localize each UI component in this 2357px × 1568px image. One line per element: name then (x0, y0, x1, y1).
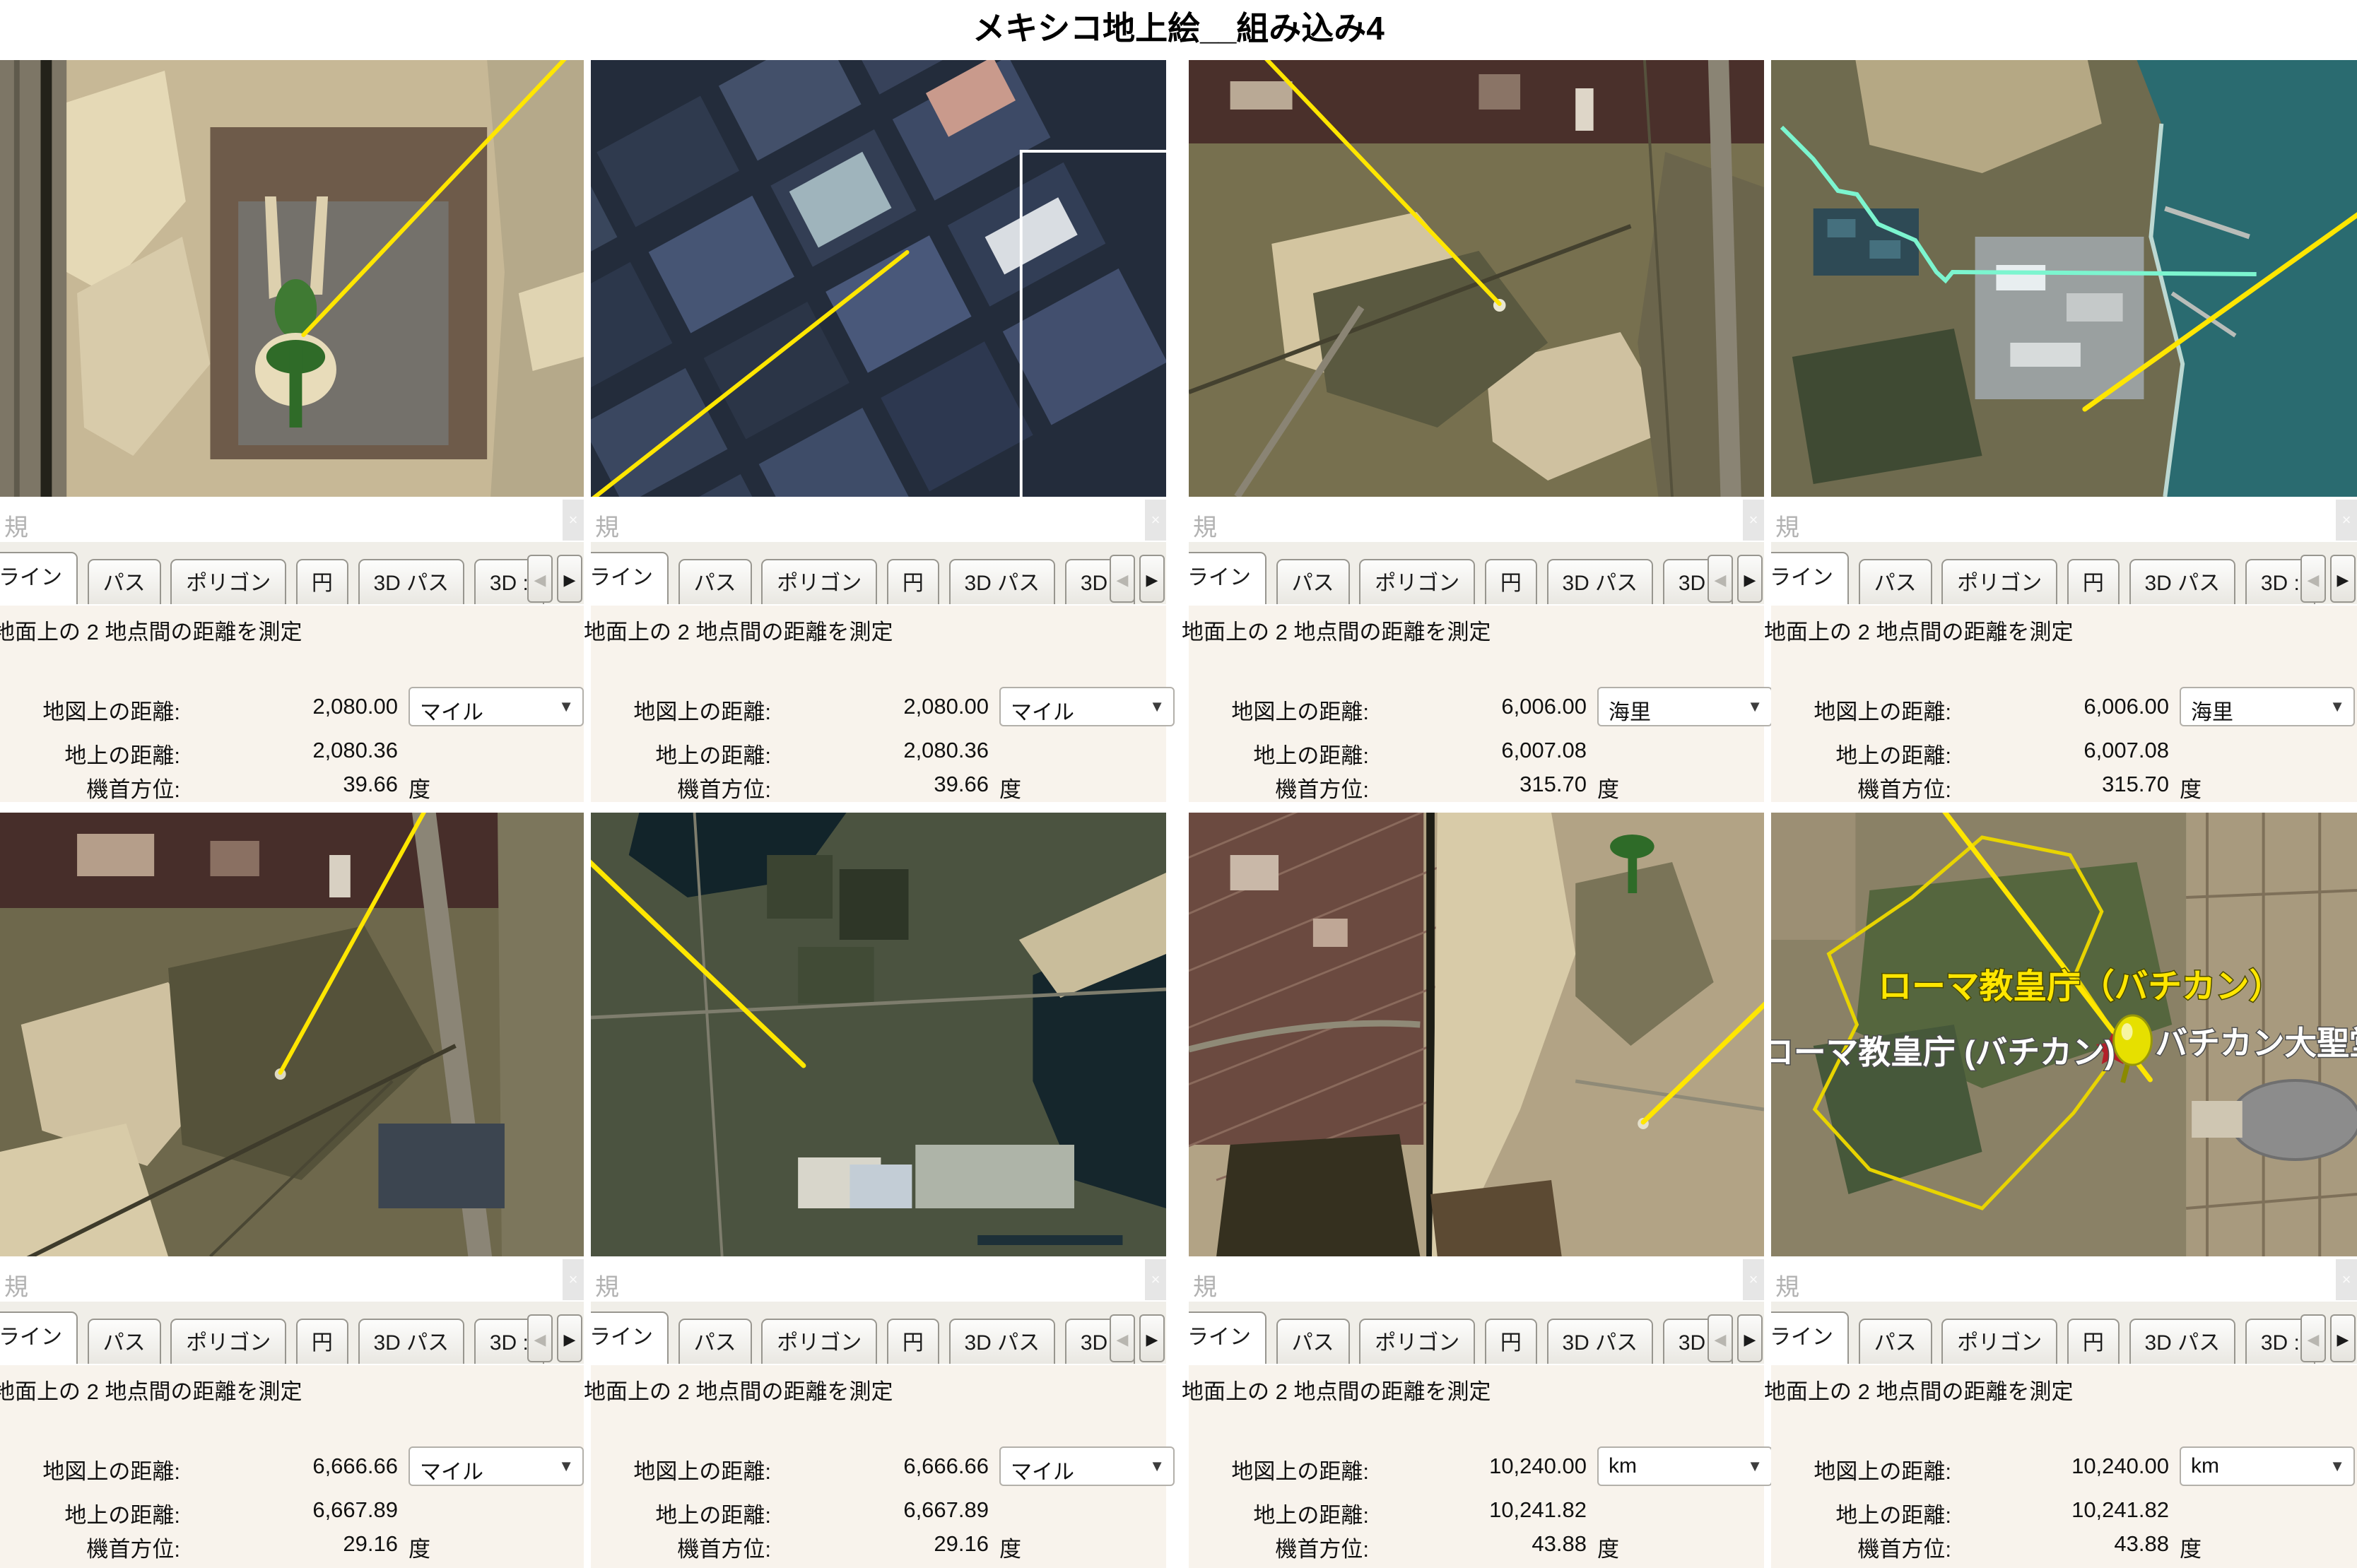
clipped-window-title: 規 (1193, 1268, 1217, 1302)
ground-distance-value: 2,080.36 (182, 738, 398, 763)
window-edge-strip: 規 × (0, 1256, 584, 1302)
ground-distance-value: 10,241.82 (1953, 1497, 2169, 1523)
measure-tabbar: ライン パス ポリゴン 円 3D パス 3D : ◀ ▶ (1771, 1302, 2357, 1365)
map-distance-label: 地図上の距離: (1771, 1454, 1951, 1485)
bottom-row: 規 × ライン パス ポリゴン 円 3D パス 3D : ◀ ▶ 地面上の 2 … (0, 802, 2357, 1568)
dropdown-arrow-icon: ▼ (558, 1457, 574, 1475)
measure-description: 地面上の 2 地点間の距離を測定 (1182, 614, 1764, 646)
degrees-suffix: 度 (2180, 1531, 2229, 1563)
heading-value: 43.88 (1371, 1531, 1587, 1557)
unit-select[interactable]: マイル ▼ (999, 1446, 1175, 1486)
tab-3d-path[interactable]: 3D パス (949, 559, 1056, 606)
tab-3d-path[interactable]: 3D パス (949, 1319, 1056, 1365)
clipped-window-button[interactable]: × (2336, 1259, 2357, 1300)
measure-tabbar: ライン パス ポリゴン 円 3D パス 3D : ◀ ▶ (1189, 1302, 1764, 1365)
tab-polygon[interactable]: ポリゴン (1359, 1319, 1475, 1365)
tab-polygon[interactable]: ポリゴン (1359, 559, 1475, 606)
tab-circle[interactable]: 円 (296, 559, 348, 606)
tab-path[interactable]: パス (88, 559, 161, 606)
heading-label: 機首方位: (1771, 1531, 1951, 1563)
unit-value: マイル (420, 1454, 483, 1485)
tab-line[interactable]: ライン (591, 1311, 669, 1365)
satellite-image-geoglyph[interactable] (0, 60, 584, 497)
map-distance-value: 2,080.00 (182, 694, 398, 719)
measure-description: 地面上の 2 地点間の距離を測定 (0, 1374, 584, 1405)
tab-scroll-right-icon[interactable]: ▶ (1139, 555, 1165, 603)
satellite-image-desert-river[interactable] (1189, 813, 1764, 1256)
ground-distance-label: 地上の距離: (1189, 1497, 1369, 1529)
tab-line[interactable]: ライン (1189, 1311, 1266, 1365)
satellite-image-industrial[interactable] (591, 813, 1166, 1256)
ground-distance-value: 6,007.08 (1371, 738, 1587, 763)
place-label-left[interactable]: ローマ教皇庁 (バチカン) (1771, 1034, 2115, 1071)
degrees-suffix: 度 (999, 772, 1049, 803)
unit-select[interactable]: km ▼ (2180, 1446, 2355, 1486)
tab-scroll-right-icon[interactable]: ▶ (1737, 555, 1763, 603)
heading-label: 機首方位: (0, 772, 180, 803)
heading-label: 機首方位: (1771, 772, 1951, 803)
measure-slot: 規 × ライン パス ポリゴン 円 3D パス 3D : ◀ ▶ 地面上の 2 … (1771, 1256, 2357, 1568)
ground-distance-value: 6,667.89 (773, 1497, 989, 1523)
measure-slot: 規 × ライン パス ポリゴン 円 3D パス 3D : ◀ ▶ 地面上の 2 … (0, 1256, 584, 1568)
heading-value: 43.88 (1953, 1531, 2169, 1557)
dropdown-arrow-icon: ▼ (558, 697, 574, 716)
satellite-image-desert-b[interactable] (0, 813, 584, 1256)
satellite-image-coast[interactable] (1771, 60, 2357, 497)
clipped-window-button[interactable]: × (1743, 500, 1764, 541)
tab-path[interactable]: パス (1276, 1319, 1350, 1365)
tab-polygon[interactable]: ポリゴン (1941, 1319, 2057, 1365)
unit-select[interactable]: マイル ▼ (999, 687, 1175, 726)
tab-scroll-right-icon[interactable]: ▶ (1139, 1314, 1165, 1362)
tab-circle[interactable]: 円 (1485, 1319, 1537, 1365)
measure-description: 地面上の 2 地点間の距離を測定 (1764, 1374, 2357, 1405)
map-distance-value: 6,666.66 (182, 1454, 398, 1479)
heading-label: 機首方位: (0, 1531, 180, 1563)
window-edge-strip: 規 × (0, 497, 584, 542)
map-distance-value: 2,080.00 (773, 694, 989, 719)
ground-distance-value: 6,007.08 (1953, 738, 2169, 763)
tab-path[interactable]: パス (678, 559, 752, 606)
dropdown-arrow-icon: ▼ (1747, 1457, 1763, 1475)
map-distance-label: 地図上の距離: (591, 1454, 771, 1485)
map-distance-value: 10,240.00 (1371, 1454, 1587, 1479)
tab-scroll-right-icon[interactable]: ▶ (557, 555, 582, 603)
tab-circle[interactable]: 円 (887, 559, 939, 606)
measure-tabbar: ライン パス ポリゴン 円 3D パス 3D : ◀ ▶ (591, 542, 1166, 606)
ground-distance-label: 地上の距離: (0, 1497, 180, 1529)
measure-description: 地面上の 2 地点間の距離を測定 (1764, 614, 2357, 646)
unit-value: マイル (1011, 1454, 1074, 1485)
tab-3d-path[interactable]: 3D パス (1547, 1319, 1654, 1365)
satellite-image-vatican[interactable]: ローマ教皇庁（バチカン） ローマ教皇庁 (バチカン) バチカン大聖堂 (1771, 813, 2357, 1256)
tab-scroll-right-icon[interactable]: ▶ (1737, 1314, 1763, 1362)
tab-scroll-left-icon[interactable]: ◀ (1110, 1314, 1135, 1362)
ground-distance-label: 地上の距離: (1189, 738, 1369, 770)
tab-scroll-left-icon[interactable]: ◀ (1110, 555, 1135, 603)
tab-circle[interactable]: 円 (296, 1319, 348, 1365)
tab-line[interactable]: ライン (591, 552, 669, 606)
tab-scroll-right-icon[interactable]: ▶ (2330, 1314, 2356, 1362)
st-peters-square (2230, 1080, 2357, 1160)
tab-line[interactable]: ライン (0, 1311, 78, 1365)
place-label-right[interactable]: バチカン大聖堂 (2155, 1025, 2357, 1061)
map-distance-value: 6,006.00 (1953, 694, 2169, 719)
clipped-window-title: 規 (1775, 508, 1799, 543)
tab-line[interactable]: ライン (1771, 1311, 1849, 1365)
measure-tabbar: ライン パス ポリゴン 円 3D パス 3D : ◀ ▶ (1771, 542, 2357, 606)
tab-scroll-left-icon[interactable]: ◀ (1707, 1314, 1733, 1362)
heading-label: 機首方位: (1189, 772, 1369, 803)
ground-distance-value: 2,080.36 (773, 738, 989, 763)
clipped-window-button[interactable]: × (2336, 500, 2357, 541)
clipped-window-button[interactable]: × (1145, 500, 1166, 541)
clipped-window-button[interactable]: × (563, 1259, 584, 1300)
unit-select[interactable]: マイル ▼ (408, 1446, 584, 1486)
degrees-suffix: 度 (1597, 772, 1647, 803)
degrees-suffix: 度 (408, 1531, 458, 1563)
measure-tabbar: ライン パス ポリゴン 円 3D パス 3D : ◀ ▶ (591, 1302, 1166, 1365)
map-distance-label: 地図上の距離: (1189, 1454, 1369, 1485)
measure-slot: 規 × ライン パス ポリゴン 円 3D パス 3D : ◀ ▶ 地面上の 2 … (1189, 497, 1764, 802)
heading-value: 29.16 (773, 1531, 989, 1557)
measure-slot: 規 × ライン パス ポリゴン 円 3D パス 3D : ◀ ▶ 地面上の 2 … (1189, 1256, 1764, 1568)
tab-scroll-left-icon[interactable]: ◀ (527, 555, 553, 603)
heading-value: 29.16 (182, 1531, 398, 1557)
unit-value: km (2191, 1454, 2219, 1478)
tab-scroll-left-icon[interactable]: ◀ (527, 1314, 553, 1362)
ruler-measure-panel: 規 × ライン パス ポリゴン 円 3D パス 3D : ◀ ▶ 地面上の 2 … (0, 497, 584, 802)
degrees-suffix: 度 (2180, 772, 2229, 803)
unit-select[interactable]: km ▼ (1597, 1446, 1773, 1486)
tab-3d-path[interactable]: 3D パス (358, 559, 465, 606)
tab-path[interactable]: パス (1859, 1319, 1932, 1365)
window-edge-strip: 規 × (1771, 497, 2357, 542)
heading-label: 機首方位: (1189, 1531, 1369, 1563)
window-edge-strip: 規 × (1189, 1256, 1764, 1302)
ground-distance-label: 地上の距離: (1771, 738, 1951, 770)
degrees-suffix: 度 (999, 1531, 1049, 1563)
tab-3d-path[interactable]: 3D パス (358, 1319, 465, 1365)
tab-path[interactable]: パス (88, 1319, 161, 1365)
ground-distance-label: 地上の距離: (591, 1497, 771, 1529)
tab-line[interactable]: ライン (1189, 552, 1266, 606)
unit-value: マイル (1011, 695, 1074, 726)
unit-value: 海里 (2191, 695, 2233, 726)
measure-description: 地面上の 2 地点間の距離を測定 (1182, 1374, 1764, 1405)
clipped-window-title: 規 (4, 1268, 28, 1302)
dropdown-arrow-icon: ▼ (2329, 1457, 2345, 1475)
heading-value: 315.70 (1371, 772, 1587, 797)
dropdown-arrow-icon: ▼ (1149, 697, 1165, 716)
ruler-measure-panel: 規 × ライン パス ポリゴン 円 3D パス 3D : ◀ ▶ 地面上の 2 … (1189, 497, 1764, 802)
satellite-image-city[interactable] (591, 60, 1166, 497)
window-edge-strip: 規 × (591, 497, 1166, 542)
measure-slot: 規 × ライン パス ポリゴン 円 3D パス 3D : ◀ ▶ 地面上の 2 … (591, 497, 1166, 802)
ruler-measure-panel: 規 × ライン パス ポリゴン 円 3D パス 3D : ◀ ▶ 地面上の 2 … (591, 1256, 1166, 1568)
ground-distance-value: 6,667.89 (182, 1497, 398, 1523)
map-distance-label: 地図上の距離: (0, 1454, 180, 1485)
unit-select[interactable]: 海里 ▼ (2180, 687, 2355, 726)
heading-value: 39.66 (773, 772, 989, 797)
tab-3d-path[interactable]: 3D パス (1547, 559, 1654, 606)
dropdown-arrow-icon: ▼ (1149, 1457, 1165, 1475)
window-edge-strip: 規 × (591, 1256, 1166, 1302)
clipped-window-title: 規 (595, 508, 619, 543)
degrees-suffix: 度 (408, 772, 458, 803)
measure-slot: 規 × ライン パス ポリゴン 円 3D パス 3D : ◀ ▶ 地面上の 2 … (591, 1256, 1166, 1568)
map-distance-value: 10,240.00 (1953, 1454, 2169, 1479)
measure-tabbar: ライン パス ポリゴン 円 3D パス 3D : ◀ ▶ (0, 542, 584, 606)
tab-scroll-left-icon[interactable]: ◀ (1707, 555, 1733, 603)
page-title: メキシコ地上絵__組み込み4 (0, 0, 2357, 60)
top-row: 規 × ライン パス ポリゴン 円 3D パス 3D : ◀ ▶ 地面上の 2 … (0, 60, 2357, 802)
window-edge-strip: 規 × (1189, 497, 1764, 542)
tab-polygon[interactable]: ポリゴン (761, 559, 877, 606)
tab-polygon[interactable]: ポリゴン (170, 559, 286, 606)
basilica-building (2192, 1101, 2243, 1138)
clipped-window-title: 規 (595, 1268, 619, 1302)
tab-polygon[interactable]: ポリゴン (761, 1319, 877, 1365)
ruler-measure-panel: 規 × ライン パス ポリゴン 円 3D パス 3D : ◀ ▶ 地面上の 2 … (1771, 1256, 2357, 1568)
tab-scroll-left-icon[interactable]: ◀ (2300, 555, 2326, 603)
ruler-measure-panel: 規 × ライン パス ポリゴン 円 3D パス 3D : ◀ ▶ 地面上の 2 … (0, 1256, 584, 1568)
tab-circle[interactable]: 円 (887, 1319, 939, 1365)
tab-path[interactable]: パス (1276, 559, 1350, 606)
measure-tabbar: ライン パス ポリゴン 円 3D パス 3D : ◀ ▶ (0, 1302, 584, 1365)
ruler-measure-panel: 規 × ライン パス ポリゴン 円 3D パス 3D : ◀ ▶ 地面上の 2 … (1771, 497, 2357, 802)
tab-line[interactable]: ライン (1771, 552, 1849, 606)
unit-value: km (1609, 1454, 1637, 1478)
tab-scroll-right-icon[interactable]: ▶ (2330, 555, 2356, 603)
place-label-top[interactable]: ローマ教皇庁（バチカン） (1878, 968, 2283, 1006)
clipped-window-button[interactable]: × (1743, 1259, 1764, 1300)
tab-path[interactable]: パス (1859, 559, 1932, 606)
measure-tabbar: ライン パス ポリゴン 円 3D パス 3D : ◀ ▶ (1189, 542, 1764, 606)
degrees-suffix: 度 (1597, 1531, 1647, 1563)
tab-scroll-right-icon[interactable]: ▶ (557, 1314, 582, 1362)
tab-path[interactable]: パス (678, 1319, 752, 1365)
measure-description: 地面上の 2 地点間の距離を測定 (0, 614, 584, 646)
clipped-window-title: 規 (4, 508, 28, 543)
window-edge-strip: 規 × (1771, 1256, 2357, 1302)
ruler-measure-panel: 規 × ライン パス ポリゴン 円 3D パス 3D : ◀ ▶ 地面上の 2 … (1189, 1256, 1764, 1568)
map-distance-label: 地図上の距離: (1189, 694, 1369, 726)
unit-value: 海里 (1609, 695, 1651, 726)
tab-3d-path[interactable]: 3D パス (2129, 1319, 2236, 1365)
heading-value: 315.70 (1953, 772, 2169, 797)
map-distance-value: 6,666.66 (773, 1454, 989, 1479)
dropdown-arrow-icon: ▼ (2329, 697, 2345, 716)
tab-polygon[interactable]: ポリゴン (1941, 559, 2057, 606)
unit-select[interactable]: マイル ▼ (408, 687, 584, 726)
map-distance-label: 地図上の距離: (1771, 694, 1951, 726)
unit-select[interactable]: 海里 ▼ (1597, 687, 1773, 726)
ground-distance-label: 地上の距離: (1771, 1497, 1951, 1529)
tab-scroll-left-icon[interactable]: ◀ (2300, 1314, 2326, 1362)
ground-distance-label: 地上の距離: (591, 738, 771, 770)
heading-label: 機首方位: (591, 1531, 771, 1563)
clipped-window-title: 規 (1775, 1268, 1799, 1302)
dropdown-arrow-icon: ▼ (1747, 697, 1763, 716)
measure-slot: 規 × ライン パス ポリゴン 円 3D パス 3D : ◀ ▶ 地面上の 2 … (0, 497, 584, 802)
ruler-measure-panel: 規 × ライン パス ポリゴン 円 3D パス 3D : ◀ ▶ 地面上の 2 … (591, 497, 1166, 802)
measure-description: 地面上の 2 地点間の距離を測定 (584, 614, 1166, 646)
tab-circle[interactable]: 円 (1485, 559, 1537, 606)
map-distance-label: 地図上の距離: (0, 694, 180, 726)
satellite-image-desert-a[interactable] (1189, 60, 1764, 497)
unit-value: マイル (420, 695, 483, 726)
heading-label: 機首方位: (591, 772, 771, 803)
clipped-window-button[interactable]: × (563, 500, 584, 541)
tab-circle[interactable]: 円 (2067, 1319, 2120, 1365)
tab-circle[interactable]: 円 (2067, 559, 2120, 606)
heading-value: 39.66 (182, 772, 398, 797)
tab-3d-path[interactable]: 3D パス (2129, 559, 2236, 606)
ground-distance-value: 10,241.82 (1371, 1497, 1587, 1523)
measure-description: 地面上の 2 地点間の距離を測定 (584, 1374, 1166, 1405)
clipped-window-title: 規 (1193, 508, 1217, 543)
measure-slot: 規 × ライン パス ポリゴン 円 3D パス 3D : ◀ ▶ 地面上の 2 … (1771, 497, 2357, 802)
tab-polygon[interactable]: ポリゴン (170, 1319, 286, 1365)
map-distance-label: 地図上の距離: (591, 694, 771, 726)
map-distance-value: 6,006.00 (1371, 694, 1587, 719)
ground-distance-label: 地上の距離: (0, 738, 180, 770)
clipped-window-button[interactable]: × (1145, 1259, 1166, 1300)
tab-line[interactable]: ライン (0, 552, 78, 606)
